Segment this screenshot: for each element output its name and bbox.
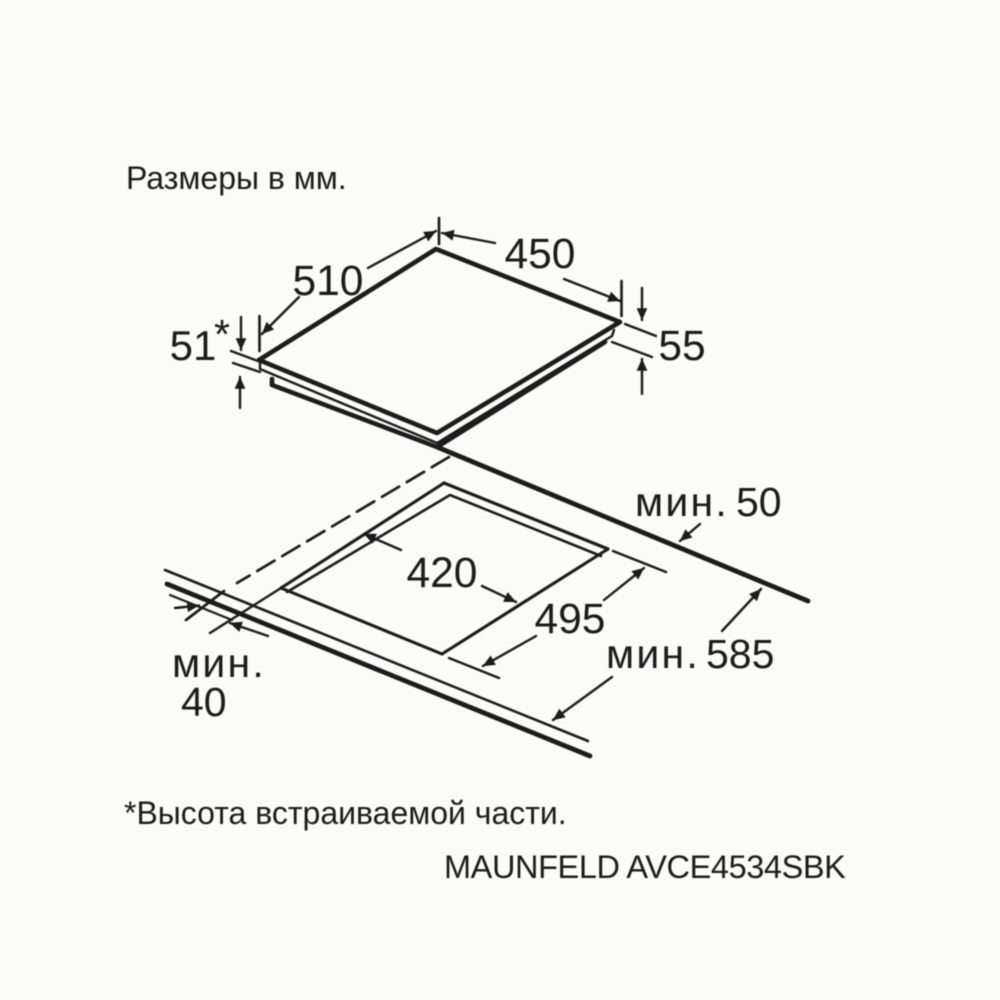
svg-text:MAUNFELD AVCE4534SBK: MAUNFELD AVCE4534SBK <box>444 849 846 885</box>
svg-text:*: * <box>214 311 230 357</box>
svg-text:510: 510 <box>293 258 364 305</box>
svg-text:495: 495 <box>535 596 606 643</box>
svg-text:*Высота встраиваемой части.: *Высота встраиваемой части. <box>124 795 567 831</box>
svg-text:585: 585 <box>706 631 774 677</box>
svg-text:51: 51 <box>170 322 217 369</box>
svg-text:420: 420 <box>407 550 478 597</box>
svg-text:450: 450 <box>505 231 576 278</box>
svg-text:40: 40 <box>181 679 227 725</box>
svg-text:50: 50 <box>736 479 782 525</box>
svg-text:55: 55 <box>658 323 705 370</box>
svg-text:мин.: мин. <box>606 631 700 677</box>
svg-text:Размеры в мм.: Размеры в мм. <box>126 160 347 196</box>
svg-text:мин.: мин. <box>635 479 729 525</box>
